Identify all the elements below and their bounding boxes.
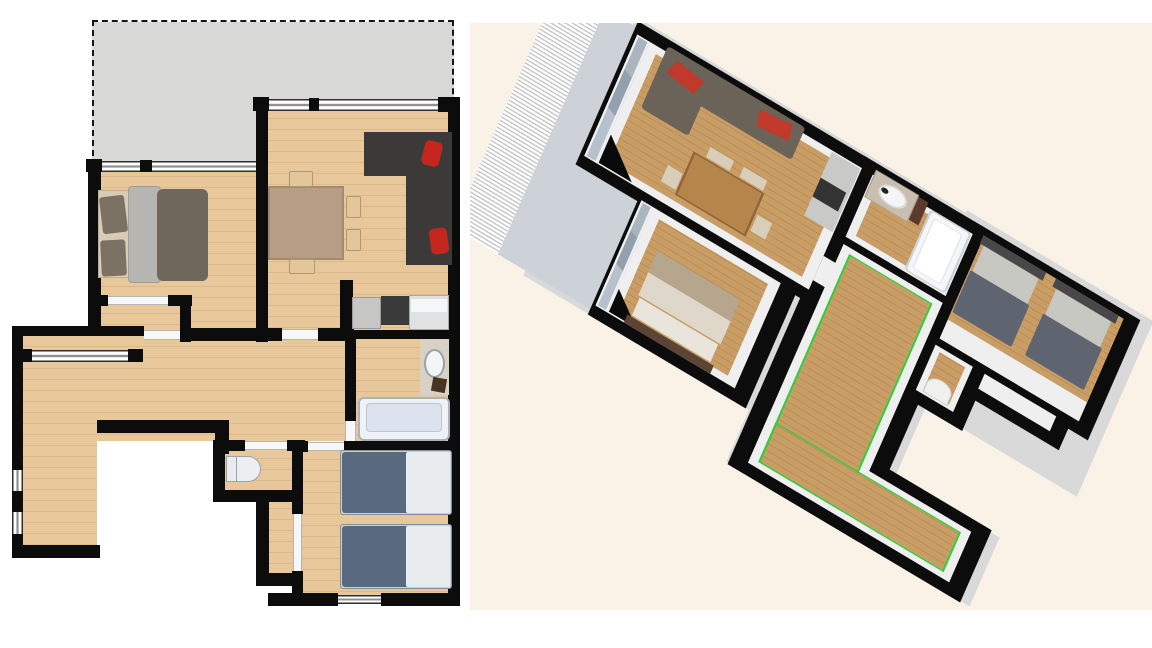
terrace-dash-left	[92, 20, 94, 166]
bedroom2-door	[308, 442, 344, 451]
floor-plan-3d-view	[470, 23, 1152, 610]
floor-plan-2d-view	[0, 0, 470, 648]
bottom-wall-west	[268, 593, 338, 606]
dining-chair	[346, 196, 361, 218]
dining-window-band	[255, 99, 452, 111]
single-bed-duvet	[406, 526, 450, 587]
bedroom2-left-wall-upper	[292, 440, 303, 514]
single-bed-duvet	[406, 452, 450, 513]
dining-chair	[346, 229, 361, 251]
hall-top-wall-mid	[180, 328, 282, 341]
bedroom1-bottom-wall-west	[88, 295, 108, 306]
single-bed-blanket	[342, 526, 411, 587]
wc-door	[245, 441, 287, 450]
bed-duvet	[157, 189, 208, 281]
kitchen-fridge	[352, 297, 381, 329]
wc-bottom-wall	[213, 490, 294, 502]
kitchen-bottom-wall	[340, 330, 460, 339]
closet-door	[293, 514, 302, 573]
closet-floor	[268, 498, 294, 575]
hall-bottom-wall	[12, 545, 100, 558]
bedroom2-bottom-window	[338, 595, 381, 604]
single-bed-blanket	[342, 452, 411, 513]
dining-left-wall	[256, 103, 268, 342]
kitchen-sink	[411, 299, 447, 312]
hall-floor-left	[22, 336, 97, 547]
window-post	[309, 98, 319, 111]
closet-left-wall	[256, 490, 269, 585]
dining-door	[282, 329, 318, 340]
bathroom-sink	[424, 349, 445, 378]
dining-chair	[289, 171, 313, 187]
hall-window-post	[128, 349, 143, 362]
bathroom-accessory	[431, 377, 447, 393]
terrace-dash-top	[92, 20, 454, 22]
toilet-bowl	[236, 456, 261, 482]
office-chair-red	[428, 227, 449, 255]
hall-inner-window	[32, 350, 128, 362]
terrace-dash-right	[452, 20, 454, 104]
window-post	[140, 160, 152, 172]
kitchen-stove	[381, 296, 409, 325]
bedroom1-window-band	[90, 161, 257, 172]
corridor-opening-lintel	[144, 330, 180, 340]
bathroom-left-wall	[345, 339, 356, 421]
bedroom1-door	[108, 296, 168, 305]
hall-top-wall-west	[12, 326, 144, 336]
dining-chair	[289, 259, 315, 274]
hall-notch-wall-h	[97, 420, 229, 433]
dining-table	[268, 186, 344, 260]
hall-left-window-a	[12, 470, 23, 491]
bed-pillow	[100, 239, 127, 276]
bed-pillow	[99, 195, 128, 235]
bathtub-basin	[366, 403, 442, 432]
floor-plan-page	[0, 0, 1152, 648]
hall-left-window-b	[12, 512, 23, 534]
